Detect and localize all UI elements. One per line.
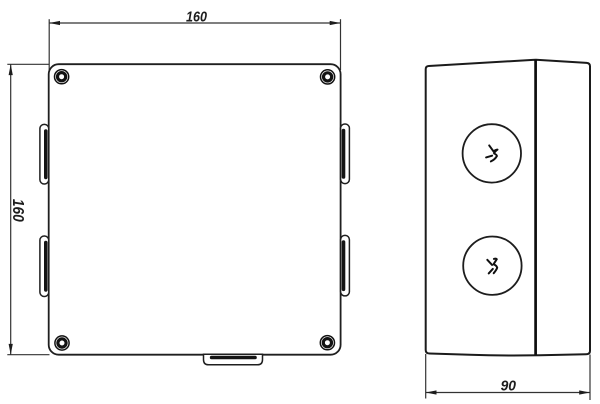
- svg-text:160: 160: [186, 9, 207, 25]
- svg-text:90: 90: [501, 378, 516, 394]
- svg-text:160: 160: [9, 199, 26, 222]
